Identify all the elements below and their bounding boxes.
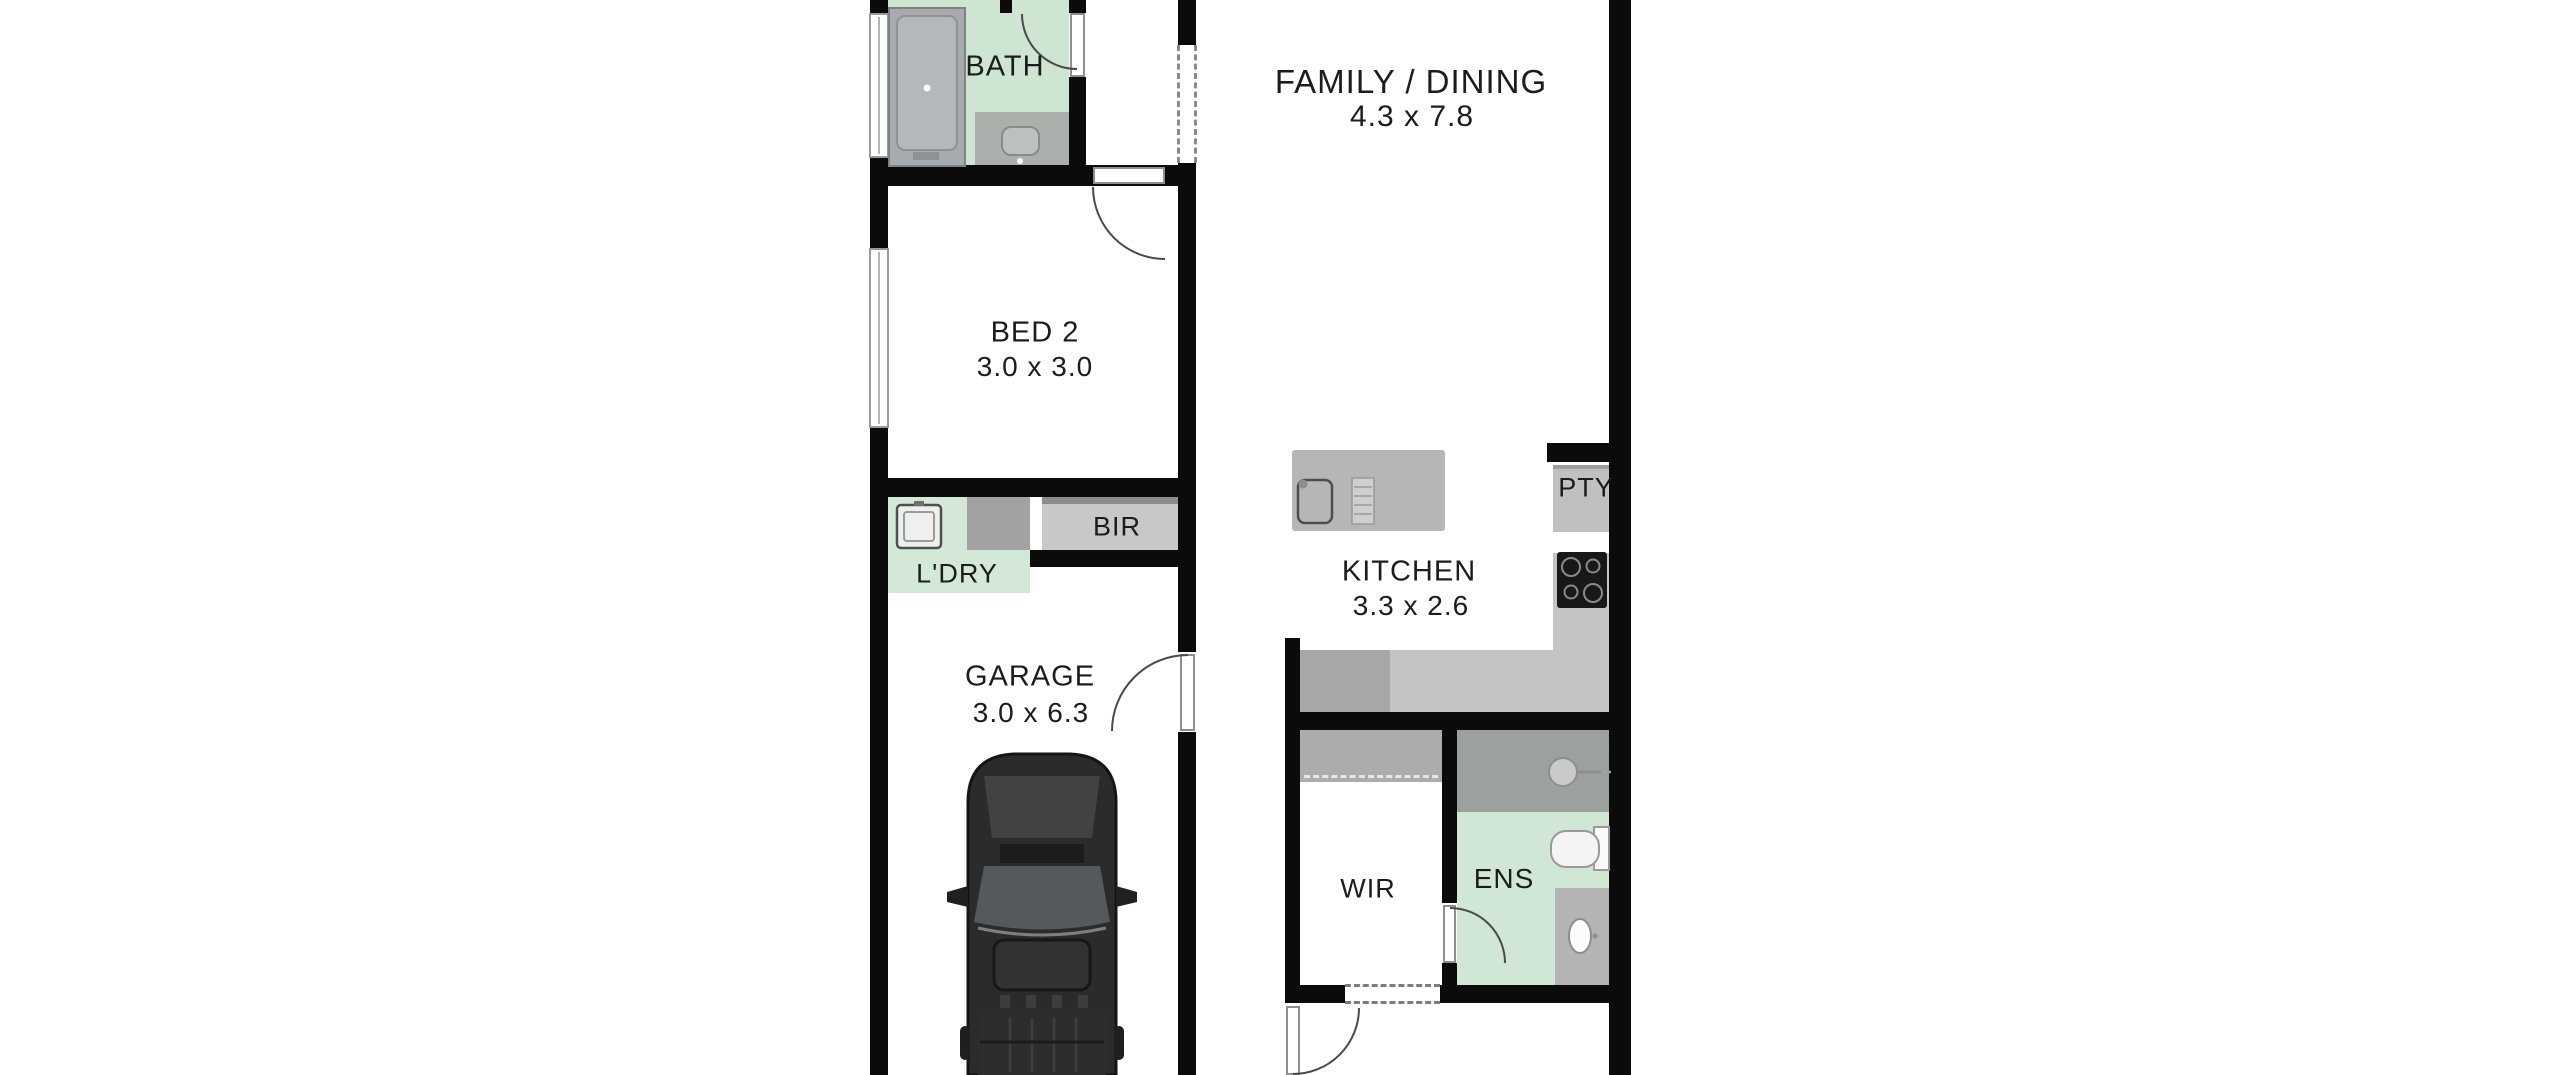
ens-door-leaf [1443, 905, 1456, 963]
wir-wardrobe-shelf [1300, 730, 1442, 782]
bed2-window [869, 248, 889, 428]
wall-kitchen-bottom [1285, 712, 1631, 730]
kitchen-side-counter [1553, 553, 1609, 650]
wall-wir-ens-divider-bottom [1442, 963, 1457, 985]
ens-shower-floor [1457, 725, 1609, 812]
garage-label: GARAGE [965, 661, 1095, 694]
wall-pantry-top [1547, 443, 1631, 462]
family-room-dims: 4.3 x 7.8 [1350, 100, 1474, 134]
bath-label: BATH [965, 51, 1044, 84]
wall-wir-left [1285, 638, 1300, 1003]
ens-label: ENS [1474, 863, 1535, 895]
bath-window [869, 13, 889, 158]
bed2-door-leaf [1093, 167, 1165, 184]
wall-bath-right-top [1069, 0, 1086, 13]
wall-bir-bottom [1030, 550, 1196, 567]
wall-bed2-bottom [870, 478, 1196, 497]
wall-hall-top-stub [1000, 0, 1012, 13]
bed2-dims: 3.0 x 3.0 [977, 351, 1093, 383]
kitchen-bench-band [1300, 650, 1609, 712]
garage-door-leaf [1180, 654, 1195, 731]
garage-dims: 3.0 x 6.3 [973, 697, 1089, 729]
wall-left-exterior [870, 0, 888, 1075]
bed2-label: BED 2 [991, 317, 1080, 350]
wall-bath-right [1069, 77, 1086, 166]
kitchen-island-bench [1292, 450, 1445, 531]
pantry-label: PTY [1558, 473, 1614, 504]
wall-interior-vertical-bottom [1178, 732, 1196, 1075]
bed2-door-swing [1093, 187, 1165, 259]
bath-toilet-nook-floor [975, 112, 1069, 166]
wir-cased-opening [1345, 984, 1440, 1004]
car-icon [947, 754, 1137, 1075]
family-room-label: FAMILY / DINING [1275, 63, 1547, 101]
wall-wir-ens-divider-top [1442, 730, 1457, 903]
ens-vanity [1555, 888, 1609, 985]
wall-bottom-band [1285, 985, 1631, 1003]
wir-label: WIR [1340, 874, 1395, 905]
wall-interior-vertical-mid [1178, 163, 1196, 652]
floorplan: FAMILY / DINING 4.3 x 7.8 BATH BED 2 3.0… [0, 0, 2560, 1075]
bath-door-leaf [1070, 13, 1085, 77]
bed1-door-swing [1293, 1008, 1359, 1074]
family-wall-window [1177, 45, 1197, 163]
kitchen-label: KITCHEN [1342, 556, 1476, 589]
garage-door-swing [1112, 655, 1188, 731]
bed1-door-leaf [1286, 1006, 1300, 1075]
wall-right-exterior [1609, 0, 1631, 1075]
laundry-cabinet [967, 495, 1030, 550]
wall-interior-vertical-top [1178, 0, 1196, 45]
bir-label: BIR [1093, 512, 1141, 543]
kitchen-dims: 3.3 x 2.6 [1353, 590, 1469, 622]
laundry-label: L'DRY [916, 559, 998, 590]
